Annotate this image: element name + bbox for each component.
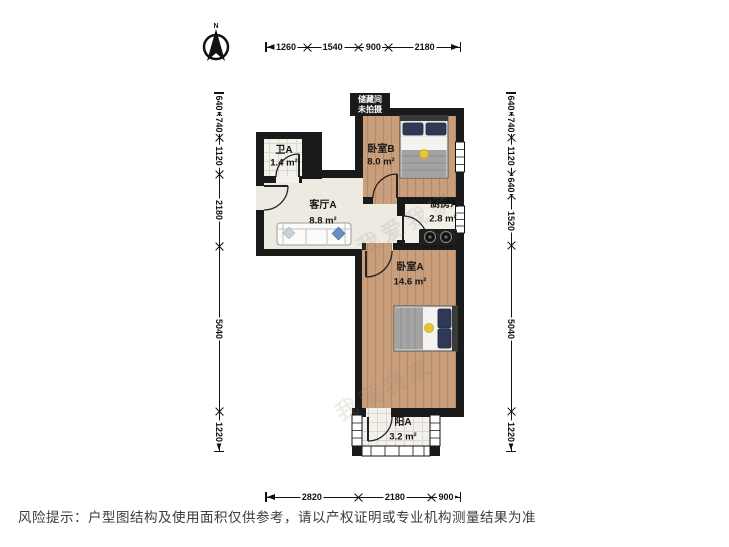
room-area-balcony: 3.2 m² [389,432,416,442]
bedroom-b-window [456,142,465,172]
dimension-value: 2180 [413,42,436,52]
dimension-value: 1120 [214,145,224,168]
dimension-tick [506,406,517,417]
sofa [277,223,351,245]
dimension-tick [426,492,437,503]
dimension-end-bar [214,451,224,453]
dimension-value: 2180 [383,492,406,502]
dimension-value: 5040 [506,317,516,340]
dimension-value: 740 [214,116,224,134]
bathroom-opening [276,176,299,183]
room-area-bedroom-b: 8.0 m² [367,157,394,167]
dimension-line-left: 6407401120218050401220 [212,92,226,452]
dimension-end-bar [460,42,462,52]
dimension-value: 900 [364,42,382,52]
balcony-corner-right [430,446,440,456]
dimension-value: 640 [506,94,516,112]
dimension-value: 1520 [506,209,516,232]
room-label-bedroom-b: 卧室B [367,145,394,155]
bed-b-pillow-accent [420,150,429,159]
dimension-value: 740 [506,116,516,134]
dimension-value: 2180 [214,199,224,222]
room-area-bedroom-a: 14.6 m² [394,277,427,287]
bed-a [394,306,457,351]
room-label-bedroom-a: 卧室A [396,263,423,273]
room-area-living: 8.8 m² [309,216,336,226]
dimension-tick [214,169,225,180]
room-label-bathroom: 卫A [275,146,292,156]
dimension-value: 1540 [321,42,344,52]
bedroom-b-left-wall [355,116,363,178]
dimension-tick [353,492,364,503]
dimension-line-bottom: 28202180900 [265,490,461,504]
room-area-bathroom: 1.4 m² [270,158,297,168]
dimension-value: 640 [506,176,516,194]
dimension-value: 1260 [274,42,297,52]
floor-plan-page: N 我爱我家 我爱我家 储藏间 未拍摄 卫A 1.4 m² 客厅A 8.8 m²… [0,0,729,547]
dimension-line-top: 126015409002180 [265,40,461,54]
dimension-tick [214,241,225,252]
dimension-value: 1120 [506,145,516,168]
dimension-tick [214,406,225,417]
dimension-tick [353,42,364,53]
north-label: N [213,23,218,30]
dimension-end-bar [460,492,462,502]
dimension-value: 640 [214,94,224,112]
dimension-value: 5040 [214,317,224,340]
balcony-bottom-window [362,446,430,456]
dimension-arrow [451,44,459,50]
dimension-value: 2820 [300,492,323,502]
dimension-value: 900 [437,492,455,502]
dimension-line-right: 6407401120640152050401220 [504,92,518,452]
dimension-tick [506,240,517,251]
compass-needle [207,29,225,61]
storage-label-line2: 未拍摄 [358,106,382,114]
dimension-value: 1220 [214,420,224,443]
storage-label-line1: 储藏间 [358,96,382,104]
north-compass: N [204,23,228,61]
dimension-tick [383,42,394,53]
bedroom-b-opening [373,197,397,204]
balcony-corner-left [352,446,362,456]
room-label-kitchen: 厨房A [430,200,457,210]
entry-opening [256,186,264,210]
room-label-balcony: 阳A [394,418,411,428]
bed-a-pillow-accent [425,324,434,333]
bed-b [400,116,448,178]
dimension-arrow [267,494,275,500]
balcony-right-window [430,415,440,446]
room-label-living: 客厅A [309,201,336,211]
stove [419,229,457,245]
living-bottom-wall [256,249,362,256]
floor-plan-drawing: N [0,0,729,547]
bathroom-right-wall [302,132,322,179]
room-area-kitchen: 2.8 m² [429,214,456,224]
dimension-tick [302,42,313,53]
risk-disclaimer: 风险提示：户型图结构及使用面积仅供参考，请以产权证明或专业机构测量结果为准 [18,506,536,526]
dimension-end-bar [506,451,516,453]
dimension-value: 1220 [506,420,516,443]
